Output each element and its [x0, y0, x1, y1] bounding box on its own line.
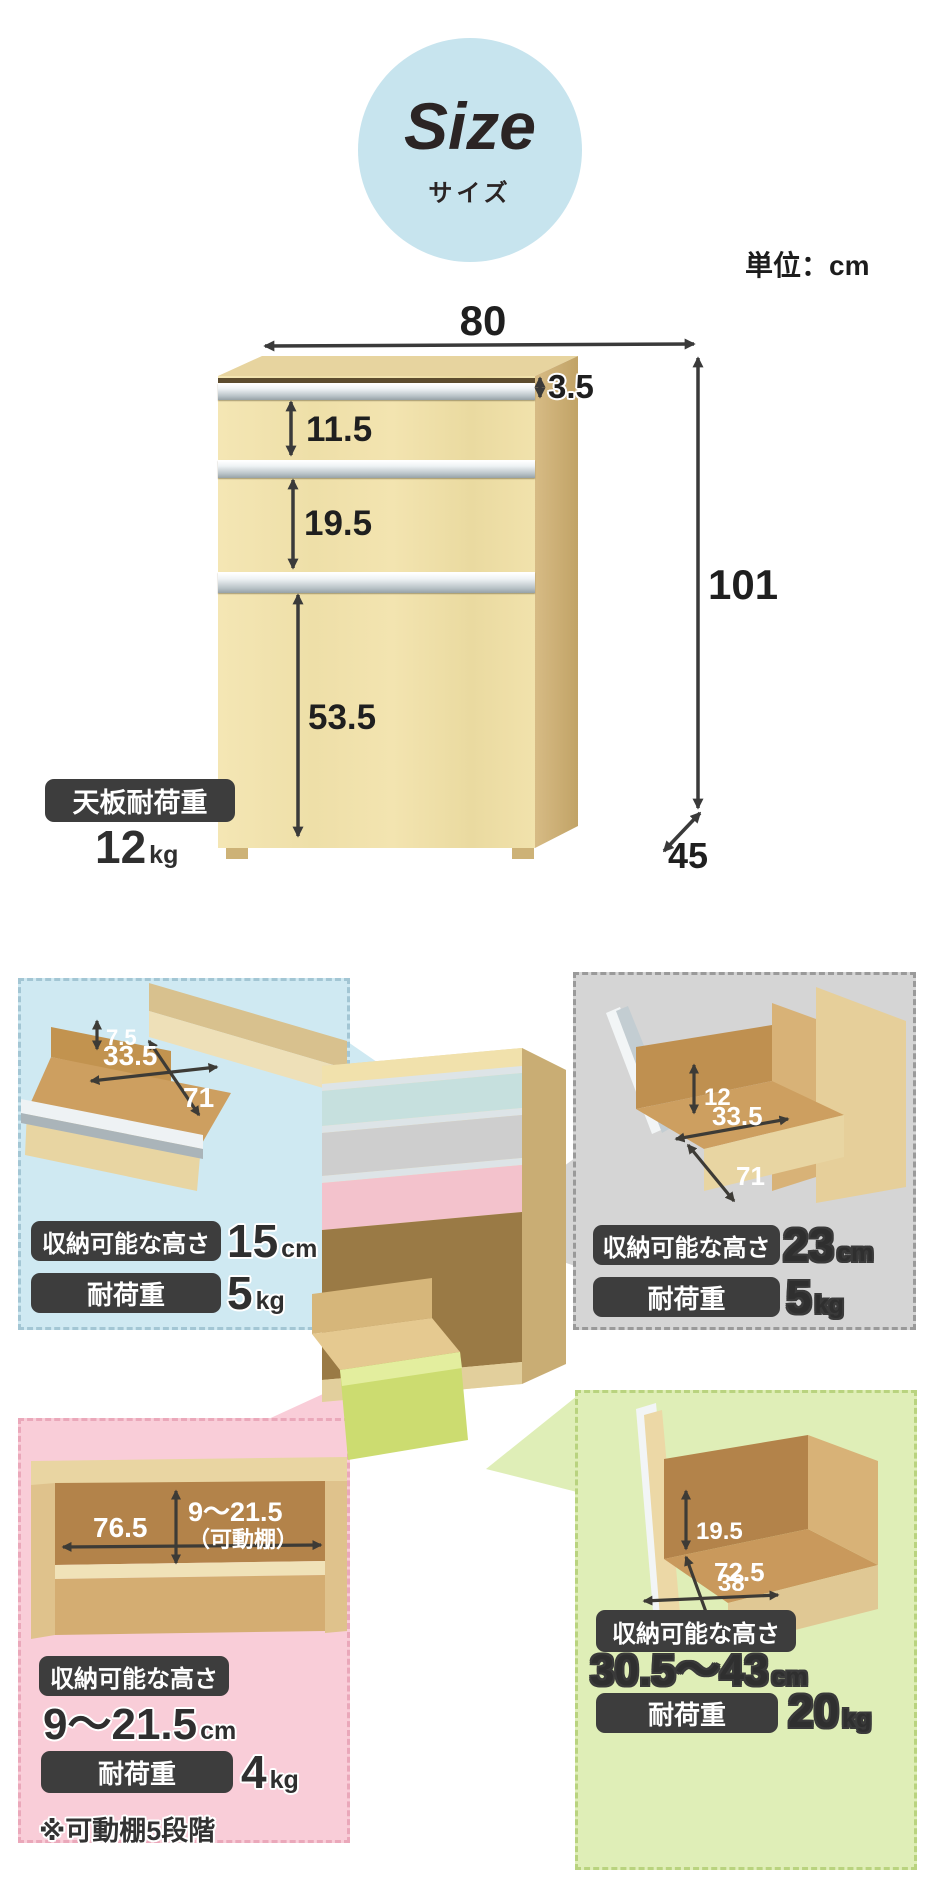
- drawer3-width: 38: [718, 1570, 745, 1597]
- top-load-unit: kg: [149, 843, 178, 868]
- width-arrow: [265, 344, 694, 346]
- shelf-width: 76.5: [93, 1512, 148, 1543]
- load-value: 5: [227, 1270, 253, 1316]
- drawer1-width: 71: [183, 1082, 214, 1113]
- drawer1-value: 11.5: [306, 412, 372, 447]
- panel-shelf: 76.5 9～21.5 （可動棚） 収納可能な高さ 9～21.5cm 耐荷重 4…: [18, 1418, 350, 1843]
- storage-height-badge: 収納可能な高さ: [593, 1225, 780, 1265]
- storage-height-value: 15: [227, 1218, 278, 1264]
- top-load-value: 12: [95, 824, 146, 870]
- load-badge: 耐荷重: [596, 1693, 778, 1733]
- drawer3-value: 53.5: [308, 700, 376, 735]
- storage-height-badge: 収納可能な高さ: [31, 1221, 221, 1261]
- load-badge: 耐荷重: [593, 1277, 780, 1317]
- load-value: 5: [786, 1274, 812, 1320]
- depth-value: 45: [668, 838, 708, 874]
- drawer2-value: 19.5: [304, 506, 372, 541]
- drawer2-depth: 33.5: [712, 1101, 763, 1131]
- storage-height-badge: 収納可能な高さ: [39, 1656, 229, 1696]
- load-badge: 耐荷重: [31, 1273, 221, 1313]
- top-gap-value: 3.5: [548, 370, 594, 403]
- load-value: 20: [788, 1688, 839, 1734]
- panel-drawer3: 19.5 72.5 38 収納可能な高さ 30.5～43cm 耐荷重 20kg: [575, 1390, 917, 1870]
- load-badge: 耐荷重: [41, 1751, 233, 1793]
- drawer3-clearance: 19.5: [696, 1518, 743, 1545]
- storage-height-value: 30.5～43: [590, 1649, 769, 1693]
- drawer2-illustration: 12 33.5 71: [576, 977, 913, 1223]
- storage-height-value: 23: [783, 1222, 834, 1268]
- shelf-height-note: （可動棚）: [188, 1527, 298, 1552]
- top-load-badge: 天板耐荷重: [45, 779, 235, 822]
- storage-height-value: 9～21.5: [43, 1703, 197, 1747]
- main-dimension-arrows: [0, 0, 940, 900]
- drawer2-width: 71: [736, 1161, 765, 1191]
- height-value: 101: [708, 564, 778, 606]
- shelf-height-range: 9～21.5: [188, 1497, 283, 1527]
- center-cabinet-illustration: [282, 1032, 582, 1472]
- panel-drawer2: 12 33.5 71 収納可能な高さ 23cm 耐荷重 5kg: [573, 972, 916, 1330]
- width-value: 80: [443, 300, 523, 342]
- size-infographic: Size サイズ 単位：cm 80 101 3.5 11.5 19.5 5: [0, 0, 940, 1880]
- load-value: 4: [241, 1749, 267, 1795]
- drawer1-depth: 33.5: [103, 1040, 158, 1071]
- shelf-footnote: ※可動棚5段階: [39, 1809, 215, 1848]
